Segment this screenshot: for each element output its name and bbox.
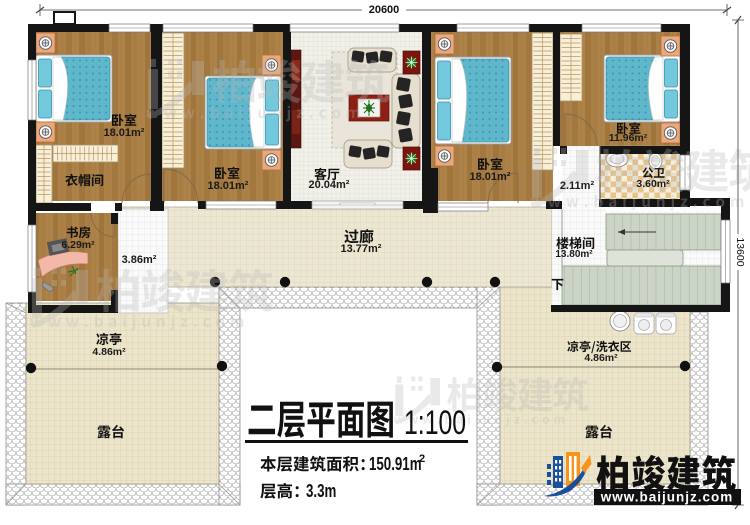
svg-text:www.baijunjz.com: www.baijunjz.com <box>600 490 734 505</box>
svg-text:6.29m²: 6.29m² <box>61 239 95 251</box>
svg-text:11.96m²: 11.96m² <box>609 132 648 144</box>
svg-text:13.80m²: 13.80m² <box>555 249 593 260</box>
svg-text:4.86m²: 4.86m² <box>92 346 126 358</box>
svg-text:2.11m²: 2.11m² <box>560 180 595 192</box>
svg-text:3.86m²: 3.86m² <box>122 254 157 266</box>
svg-text:3.60m²: 3.60m² <box>636 178 670 190</box>
svg-text:13600: 13600 <box>734 237 746 266</box>
svg-text:2: 2 <box>419 453 425 465</box>
svg-text:20.04m²: 20.04m² <box>309 179 350 191</box>
svg-text:3.3m: 3.3m <box>306 481 336 502</box>
svg-text:13.77m²: 13.77m² <box>341 243 382 255</box>
svg-text:18.01m²: 18.01m² <box>208 180 249 192</box>
svg-text:18.01m²: 18.01m² <box>470 171 511 183</box>
svg-text:18.01m²: 18.01m² <box>104 127 145 139</box>
svg-text:150.91m: 150.91m <box>369 454 422 475</box>
svg-text:20600: 20600 <box>369 4 400 16</box>
svg-text:4.86m²: 4.86m² <box>584 352 618 364</box>
svg-text:1:100: 1:100 <box>404 404 466 442</box>
